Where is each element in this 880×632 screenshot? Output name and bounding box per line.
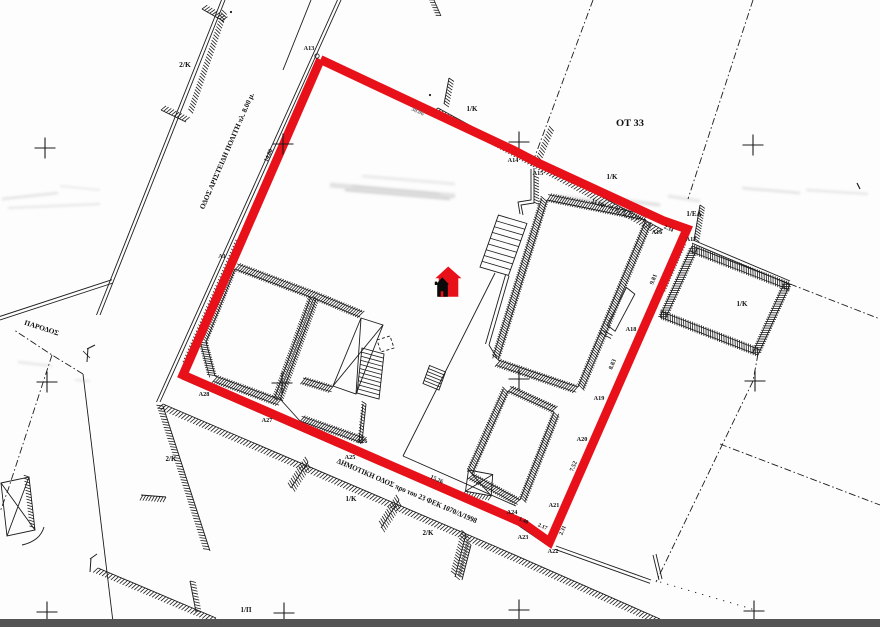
svg-text:Α25: Α25: [345, 454, 356, 461]
svg-text:2/Κ: 2/Κ: [166, 455, 177, 463]
svg-text:Α22: Α22: [548, 548, 559, 555]
svg-text:Α23: Α23: [518, 534, 529, 541]
svg-text:Α18: Α18: [626, 326, 637, 333]
svg-text:Α17: Α17: [686, 236, 697, 243]
svg-text:Α19: Α19: [594, 395, 605, 402]
svg-text:Α20: Α20: [577, 436, 588, 443]
svg-text:2/Κ: 2/Κ: [423, 529, 434, 537]
svg-text:Α16: Α16: [652, 229, 663, 236]
svg-text:Α27: Α27: [262, 417, 273, 424]
svg-text:1/Κ: 1/Κ: [737, 300, 748, 308]
svg-text:Α28: Α28: [199, 391, 210, 398]
svg-text:Α13: Α13: [304, 45, 315, 52]
svg-text:Α14: Α14: [508, 157, 519, 164]
svg-text:1/Π: 1/Π: [241, 606, 252, 614]
svg-text:Α1: Α1: [218, 253, 226, 260]
svg-text:Α24: Α24: [507, 509, 518, 516]
svg-text:ΟΤ 33: ΟΤ 33: [616, 118, 644, 128]
svg-text:2/K: 2/K: [179, 60, 191, 69]
svg-text:Α15: Α15: [533, 170, 544, 177]
svg-text:1/Κ: 1/Κ: [467, 105, 478, 113]
svg-text:1/ΕΑ: 1/ΕΑ: [686, 210, 701, 218]
svg-text:1/Κ: 1/Κ: [346, 495, 357, 503]
svg-text:Α26: Α26: [357, 438, 368, 445]
svg-text:1/Κ: 1/Κ: [607, 173, 618, 181]
svg-text:Α21: Α21: [549, 502, 560, 509]
